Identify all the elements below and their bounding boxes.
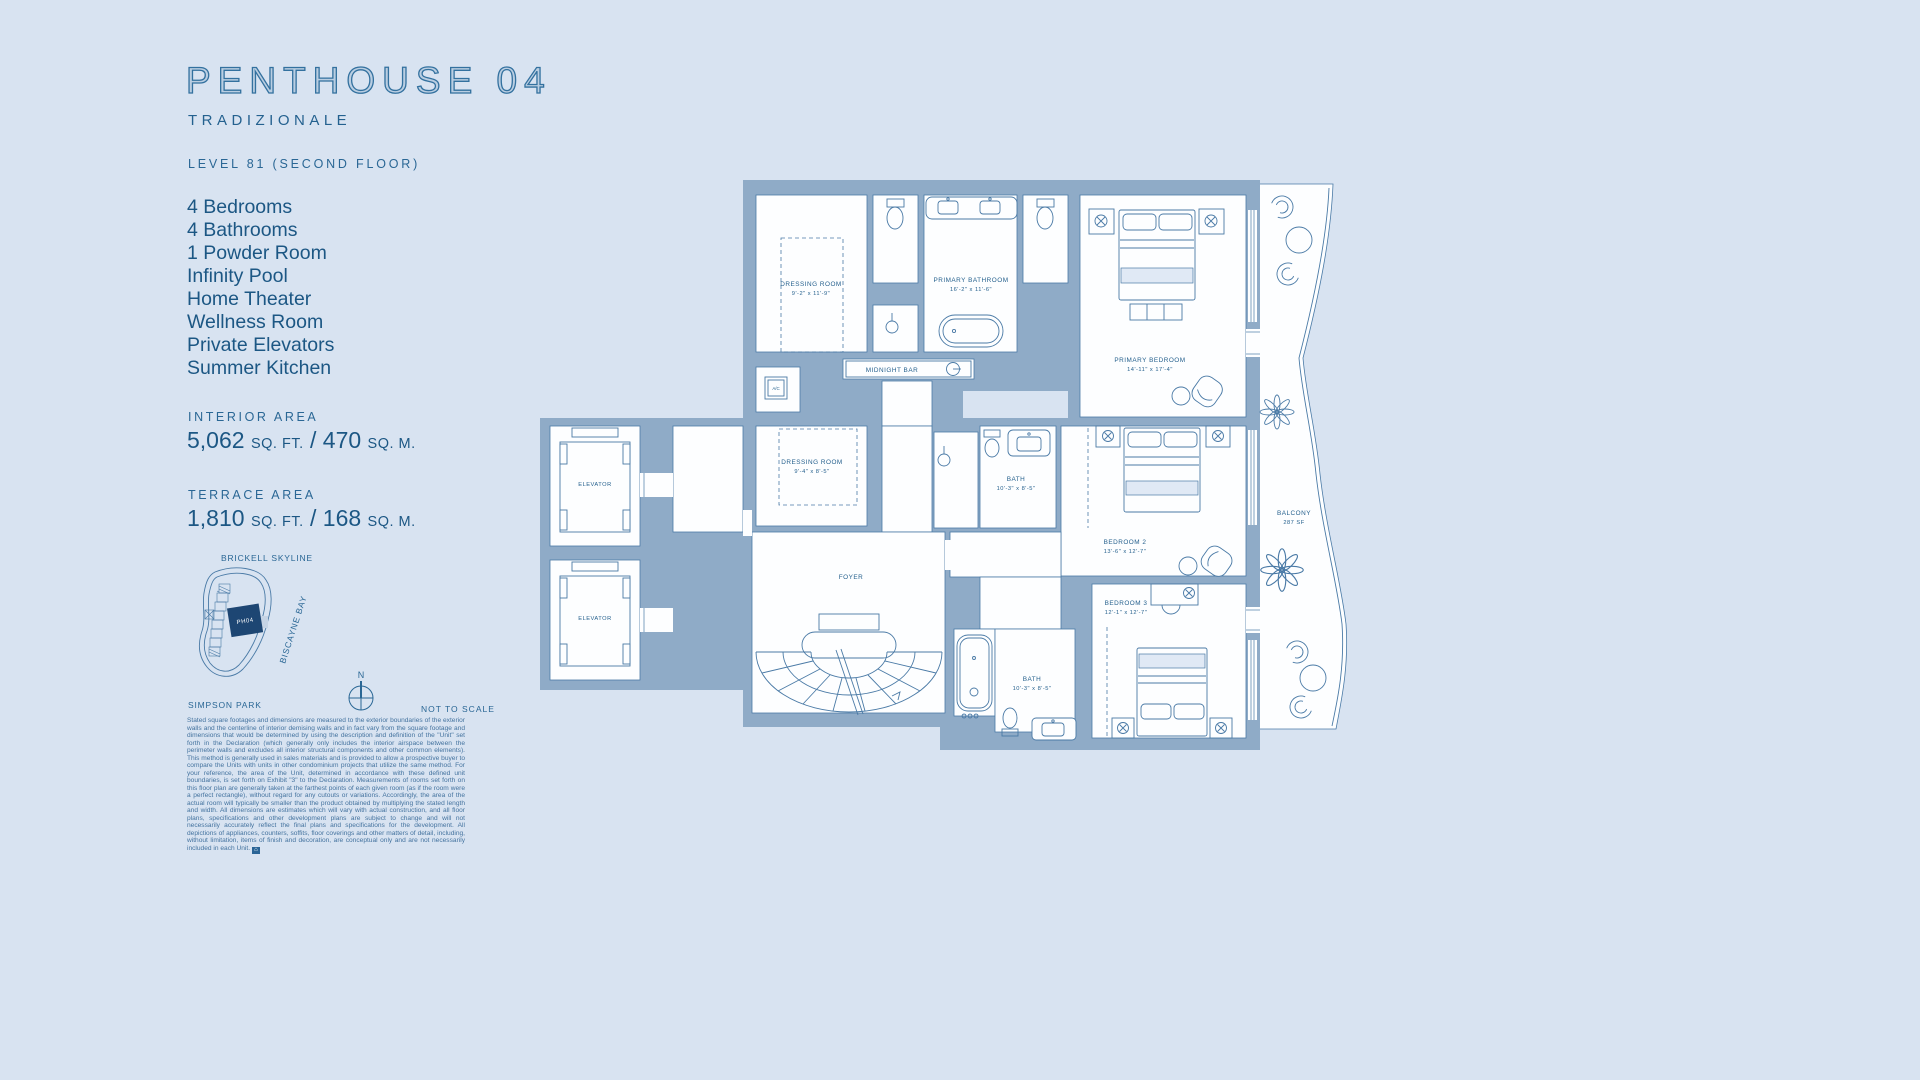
terrace-area-value: 1,810 SQ. FT. / 168 SQ. M.: [187, 505, 416, 532]
room-dims: 14'-11" x 17'-4": [1127, 367, 1173, 373]
room-dims: 16'-2" x 11'-6": [950, 287, 992, 293]
separator: /: [310, 427, 316, 453]
room-dressing-1: [756, 195, 867, 352]
feature-item: Home Theater: [187, 288, 334, 311]
room-label: BALCONY: [1277, 510, 1311, 517]
interior-metric-unit: SQ. M.: [368, 436, 416, 452]
room-label: ELEVATOR: [578, 482, 611, 488]
interior-area-label: INTERIOR AREA: [188, 410, 318, 424]
terrace-metric-unit: SQ. M.: [368, 514, 416, 530]
room-label: BATH: [1007, 476, 1026, 483]
bay-label: BISCAYNE BAY: [277, 594, 308, 664]
disclaimer-body: Stated square footages and dimensions ar…: [187, 717, 465, 852]
disclaimer-text: Stated square footages and dimensions ar…: [187, 717, 465, 854]
feature-item: 4 Bathrooms: [187, 219, 334, 242]
separator: /: [310, 505, 316, 531]
feature-item: Wellness Room: [187, 311, 334, 334]
terrace-imperial-unit: SQ. FT.: [251, 514, 304, 530]
room-label: BEDROOM 2: [1104, 539, 1147, 546]
room-dims: 12'-1" x 12'-7": [1105, 610, 1147, 616]
feature-item: 1 Powder Room: [187, 242, 334, 265]
room-label: BATH: [1023, 676, 1042, 683]
hall: [882, 381, 932, 426]
room-wc-2: [1023, 195, 1068, 283]
room-label: DRESSING ROOM: [781, 459, 843, 466]
room-label: A/C: [772, 386, 779, 391]
hall-3: [950, 532, 1061, 577]
room-wc-1: [873, 195, 918, 283]
level-label: LEVEL 81 (SECOND FLOOR): [188, 157, 420, 171]
compass-north-label: N: [358, 670, 365, 680]
interior-imperial-unit: SQ. FT.: [251, 436, 304, 452]
room-dims: 287 SF: [1283, 520, 1304, 526]
room-label: MIDNIGHT BAR: [866, 367, 918, 374]
interior-metric: 470: [323, 427, 361, 453]
sink-icon: [1032, 718, 1076, 740]
interior-imperial: 5,062: [187, 427, 245, 453]
unit-highlight: PH04: [227, 604, 263, 638]
floorplan-sheet: PENTHOUSE 04 TRADIZIONALE LEVEL 81 (SECO…: [0, 0, 1920, 1080]
skyline-label: BRICKELL SKYLINE: [221, 553, 313, 563]
feature-item: Summer Kitchen: [187, 357, 334, 380]
room-dims: 10'-3" x 8'-5": [1013, 686, 1052, 692]
balcony-floor: [1246, 184, 1347, 729]
room-label: ELEVATOR: [578, 616, 611, 622]
floor-plan: DRESSING ROOM 9'-2" x 11'-9" PRIMARY BAT…: [540, 180, 1350, 750]
collection-name: TRADIZIONALE: [188, 112, 351, 129]
room-dims: 9'-4" x 8'-5": [794, 469, 829, 475]
room-dressing-2: [756, 426, 867, 526]
room-dims: 10'-3" x 8'-5": [997, 486, 1036, 492]
room-label: BEDROOM 3: [1105, 600, 1148, 607]
equal-housing-icon: ⌂: [252, 847, 260, 854]
room-shower-bath1: [934, 432, 978, 528]
feature-item: 4 Bedrooms: [187, 196, 334, 219]
terrace-metric: 168: [323, 505, 361, 531]
room-label: FOYER: [839, 574, 864, 581]
room-label: PRIMARY BATHROOM: [933, 277, 1008, 284]
feature-item: Private Elevators: [187, 334, 334, 357]
sink-icon: [1008, 430, 1050, 456]
key-plan: BRICKELL SKYLINE PH04 BISCAYNE BAY SIMPS…: [185, 548, 485, 718]
terrace-area-label: TERRACE AREA: [188, 488, 316, 502]
vanity-icon: [926, 197, 1017, 219]
room-label: PRIMARY BEDROOM: [1114, 357, 1185, 364]
interior-area-value: 5,062 SQ. FT. / 470 SQ. M.: [187, 427, 416, 454]
compass-icon: N: [338, 666, 384, 716]
park-label: SIMPSON PARK: [188, 700, 262, 710]
room-dims: 13'-6" x 12'-7": [1104, 549, 1146, 555]
feature-list: 4 Bedrooms 4 Bathrooms 1 Powder Room Inf…: [187, 196, 334, 380]
terrace-imperial: 1,810: [187, 505, 245, 531]
room-shower-1: [873, 305, 918, 352]
room-dims: 9'-2" x 11'-9": [792, 291, 830, 297]
elevator-lobby: [673, 426, 743, 532]
window-glass: [1248, 210, 1257, 720]
page-title: PENTHOUSE 04: [186, 60, 552, 102]
scale-note: NOT TO SCALE: [421, 704, 495, 714]
room-label: DRESSING ROOM: [780, 281, 842, 288]
feature-item: Infinity Pool: [187, 265, 334, 288]
hall-4: [980, 577, 1061, 629]
hall-2: [882, 426, 932, 532]
